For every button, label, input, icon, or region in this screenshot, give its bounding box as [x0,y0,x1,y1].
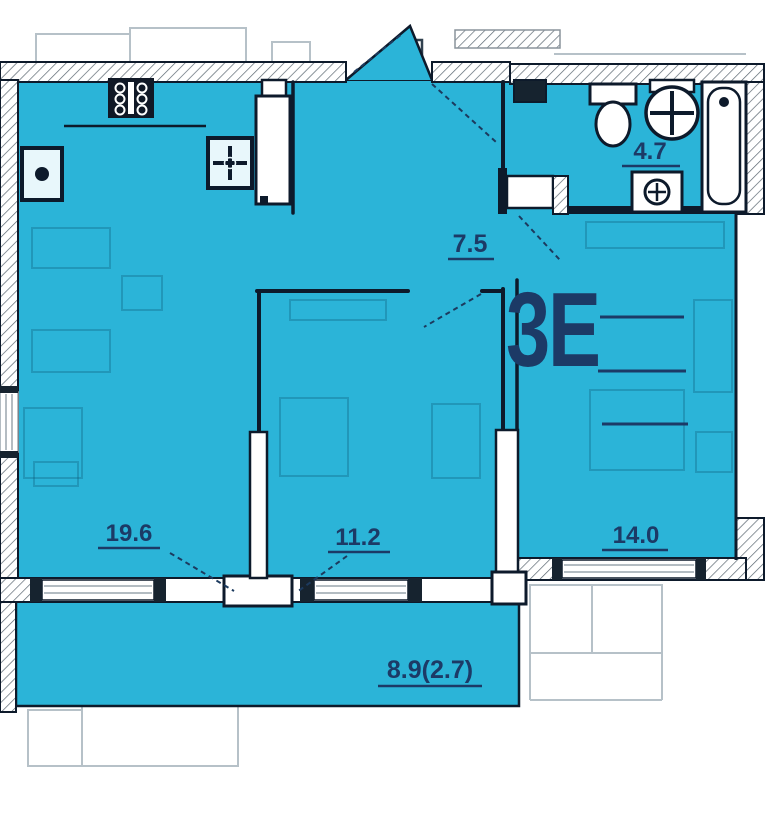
bottom-wall-right-hatch [700,558,746,580]
balcony-floor [16,600,519,706]
kitchen-sink-icon [208,138,252,188]
bathroom-right-wall [746,82,764,214]
hatched-ledge [455,30,560,48]
bedroom-right-area-label: 14.0 [613,522,660,549]
bathtub-icon [702,82,746,212]
apartment-type-label: 3Е [506,270,599,389]
cooktop-icon [108,78,154,118]
bedroom-mid-area-label: 11.2 [335,524,380,551]
bottom-wall-pier [224,576,292,606]
fridge-icon [256,96,290,204]
door-frame-post [498,168,507,214]
interior-wall-band [496,430,518,578]
washbasin-icon [646,80,698,139]
floor-plan: 19.6 11.2 14.0 7.5 4.7 8.9(2.7) 3Е 25,20… [0,0,768,817]
living-kitchen-area-label: 19.6 [106,520,153,547]
wall-footing-block [492,572,526,604]
window-bedroom-right [552,558,706,580]
bathroom-area-label: 4.7 [633,138,666,165]
door-leaf [507,176,553,208]
stove-burner-icon [35,167,49,181]
left-wall [0,80,18,580]
apartment-type: 3Е [506,270,599,389]
balcony-left-wall [0,590,16,712]
top-wall-left [0,62,346,82]
balcony-area-label: 8.9(2.7) [387,656,473,684]
hall-area-label: 7.5 [453,230,488,258]
window-bedroom-mid [300,578,422,602]
vent-shaft [514,80,546,102]
interior-wall-band [250,432,267,578]
door-side-pier [553,176,568,214]
floor-plan-page: 19.6 11.2 14.0 7.5 4.7 8.9(2.7) 3Е 25,20… [0,0,768,817]
washing-machine-icon [632,172,682,212]
top-wall-mid [432,62,510,82]
window-left-wall [0,386,18,458]
window-living [30,578,166,602]
